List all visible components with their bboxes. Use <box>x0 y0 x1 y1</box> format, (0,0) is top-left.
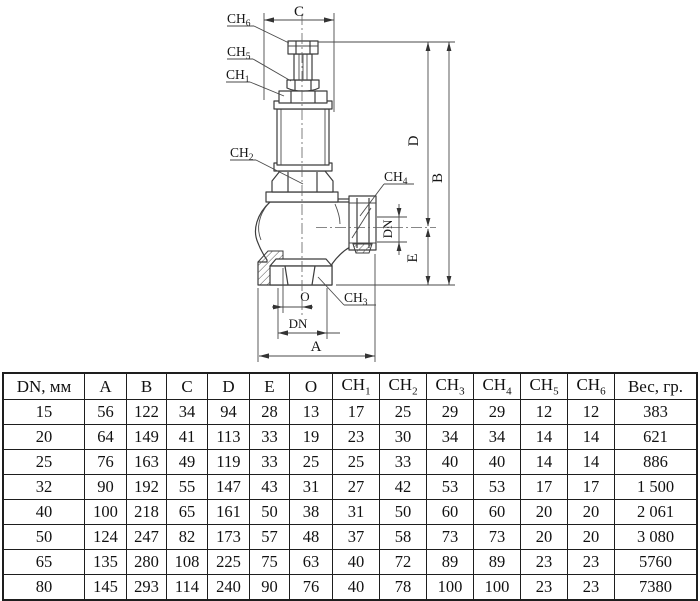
table-cell: 50 <box>3 525 85 550</box>
table-cell: 13 <box>290 400 333 425</box>
table-cell: 147 <box>208 475 250 500</box>
table-cell: 40 <box>333 575 380 601</box>
table-cell: 293 <box>127 575 167 601</box>
table-cell: 65 <box>3 550 85 575</box>
dim-label-o: O <box>300 289 309 304</box>
table-cell: 53 <box>474 475 521 500</box>
table-cell: 34 <box>167 400 208 425</box>
table-cell: 383 <box>615 400 698 425</box>
table-cell: 114 <box>167 575 208 601</box>
table-cell: 225 <box>208 550 250 575</box>
table-cell: 14 <box>521 450 568 475</box>
table-cell: 60 <box>427 500 474 525</box>
table-cell: 7380 <box>615 575 698 601</box>
table-cell: 280 <box>127 550 167 575</box>
column-header: CH2 <box>380 373 427 400</box>
dim-label-e: E <box>405 253 421 262</box>
table-cell: 58 <box>380 525 427 550</box>
table-cell: 23 <box>521 550 568 575</box>
table-cell: 40 <box>427 450 474 475</box>
column-header: C <box>167 373 208 400</box>
dim-label-dn-outlet: DN <box>380 219 395 238</box>
table-cell: 73 <box>474 525 521 550</box>
table-cell: 50 <box>380 500 427 525</box>
table-cell: 20 <box>568 525 615 550</box>
table-cell: 33 <box>250 425 290 450</box>
table-cell: 50 <box>250 500 290 525</box>
table-cell: 192 <box>127 475 167 500</box>
column-header: A <box>85 373 127 400</box>
table-cell: 76 <box>85 450 127 475</box>
table-cell: 89 <box>427 550 474 575</box>
table-cell: 3 080 <box>615 525 698 550</box>
table-row: 401002186516150383150606020202 061 <box>3 500 697 525</box>
table-cell: 113 <box>208 425 250 450</box>
column-header: O <box>290 373 333 400</box>
table-cell: 12 <box>521 400 568 425</box>
table-row: 2576163491193325253340401414886 <box>3 450 697 475</box>
table-cell: 23 <box>333 425 380 450</box>
table-cell: 886 <box>615 450 698 475</box>
table-cell: 57 <box>250 525 290 550</box>
table-cell: 119 <box>208 450 250 475</box>
table-cell: 145 <box>85 575 127 601</box>
table-cell: 75 <box>250 550 290 575</box>
table-cell: 14 <box>568 450 615 475</box>
table-cell: 90 <box>85 475 127 500</box>
table-cell: 1 500 <box>615 475 698 500</box>
table-cell: 20 <box>3 425 85 450</box>
column-header: DN, мм <box>3 373 85 400</box>
table-cell: 37 <box>333 525 380 550</box>
table-cell: 32 <box>3 475 85 500</box>
table-cell: 53 <box>427 475 474 500</box>
column-header: Вес, гр. <box>615 373 698 400</box>
table-cell: 78 <box>380 575 427 601</box>
table-cell: 94 <box>208 400 250 425</box>
table-cell: 82 <box>167 525 208 550</box>
table-cell: 14 <box>521 425 568 450</box>
table-cell: 65 <box>167 500 208 525</box>
column-header: CH1 <box>333 373 380 400</box>
table-cell: 247 <box>127 525 167 550</box>
table-row: 801452931142409076407810010023237380 <box>3 575 697 601</box>
table-cell: 5760 <box>615 550 698 575</box>
table-cell: 15 <box>3 400 85 425</box>
table-row: 2064149411133319233034341414621 <box>3 425 697 450</box>
table-cell: 89 <box>474 550 521 575</box>
table-cell: 27 <box>333 475 380 500</box>
table-row: 155612234942813172529291212383 <box>3 400 697 425</box>
table-cell: 28 <box>250 400 290 425</box>
valve-technical-drawing: CH6 CH5 CH1 CH2 CH4 CH3 C D B E DN O DN … <box>0 0 700 372</box>
table-cell: 124 <box>85 525 127 550</box>
table-cell: 64 <box>85 425 127 450</box>
column-header: B <box>127 373 167 400</box>
table-cell: 33 <box>250 450 290 475</box>
table-cell: 40 <box>333 550 380 575</box>
table-cell: 29 <box>474 400 521 425</box>
table-cell: 73 <box>427 525 474 550</box>
table-cell: 20 <box>568 500 615 525</box>
dim-label-b: B <box>430 173 446 183</box>
table-cell: 80 <box>3 575 85 601</box>
table-cell: 43 <box>250 475 290 500</box>
table-cell: 17 <box>333 400 380 425</box>
table-header-row: DN, ммABCDEOCH1CH2CH3CH4CH5CH6Вес, гр. <box>3 373 697 400</box>
table-cell: 90 <box>250 575 290 601</box>
column-header: CH3 <box>427 373 474 400</box>
table-cell: 49 <box>167 450 208 475</box>
table-cell: 33 <box>380 450 427 475</box>
table-cell: 29 <box>427 400 474 425</box>
table-cell: 25 <box>3 450 85 475</box>
table-cell: 149 <box>127 425 167 450</box>
table-cell: 621 <box>615 425 698 450</box>
table-cell: 100 <box>85 500 127 525</box>
table-cell: 25 <box>290 450 333 475</box>
dim-label-dn-inlet: DN <box>289 316 308 331</box>
table-cell: 17 <box>521 475 568 500</box>
table-cell: 23 <box>568 550 615 575</box>
table-cell: 41 <box>167 425 208 450</box>
table-row: 6513528010822575634072898923235760 <box>3 550 697 575</box>
valve-body-outline <box>255 41 376 285</box>
dim-label-c: C <box>294 4 304 20</box>
table-cell: 34 <box>427 425 474 450</box>
table-cell: 56 <box>85 400 127 425</box>
table-cell: 218 <box>127 500 167 525</box>
table-cell: 63 <box>290 550 333 575</box>
column-header: E <box>250 373 290 400</box>
table-cell: 108 <box>167 550 208 575</box>
table-cell: 161 <box>208 500 250 525</box>
table-cell: 60 <box>474 500 521 525</box>
table-row: 501242478217357483758737320203 080 <box>3 525 697 550</box>
table-cell: 48 <box>290 525 333 550</box>
table-cell: 55 <box>167 475 208 500</box>
table-cell: 34 <box>474 425 521 450</box>
column-header: CH6 <box>568 373 615 400</box>
table-cell: 72 <box>380 550 427 575</box>
table-cell: 100 <box>474 575 521 601</box>
column-header: CH5 <box>521 373 568 400</box>
column-header: D <box>208 373 250 400</box>
table-cell: 31 <box>333 500 380 525</box>
table-cell: 31 <box>290 475 333 500</box>
dimension-table: DN, ммABCDEOCH1CH2CH3CH4CH5CH6Вес, гр. 1… <box>2 372 698 601</box>
table-cell: 14 <box>568 425 615 450</box>
table-cell: 20 <box>521 500 568 525</box>
table-cell: 2 061 <box>615 500 698 525</box>
valve-datasheet-page: CH6 CH5 CH1 CH2 CH4 CH3 C D B E DN O DN … <box>0 0 700 601</box>
table-cell: 100 <box>427 575 474 601</box>
table-cell: 40 <box>474 450 521 475</box>
table-cell: 19 <box>290 425 333 450</box>
table-cell: 40 <box>3 500 85 525</box>
table-cell: 25 <box>380 400 427 425</box>
table-cell: 76 <box>290 575 333 601</box>
column-header: CH4 <box>474 373 521 400</box>
table-cell: 23 <box>521 575 568 601</box>
table-cell: 12 <box>568 400 615 425</box>
table-cell: 173 <box>208 525 250 550</box>
table-cell: 20 <box>521 525 568 550</box>
table-body: 1556122349428131725292912123832064149411… <box>3 400 697 601</box>
table-cell: 42 <box>380 475 427 500</box>
table-cell: 38 <box>290 500 333 525</box>
dim-label-a: A <box>311 339 322 355</box>
table-cell: 240 <box>208 575 250 601</box>
table-cell: 135 <box>85 550 127 575</box>
table-cell: 17 <box>568 475 615 500</box>
table-cell: 30 <box>380 425 427 450</box>
table-cell: 122 <box>127 400 167 425</box>
table-row: 32901925514743312742535317171 500 <box>3 475 697 500</box>
dim-label-d: D <box>406 135 422 146</box>
table-cell: 25 <box>333 450 380 475</box>
table-cell: 23 <box>568 575 615 601</box>
dimension-lines <box>226 13 455 362</box>
table-cell: 163 <box>127 450 167 475</box>
